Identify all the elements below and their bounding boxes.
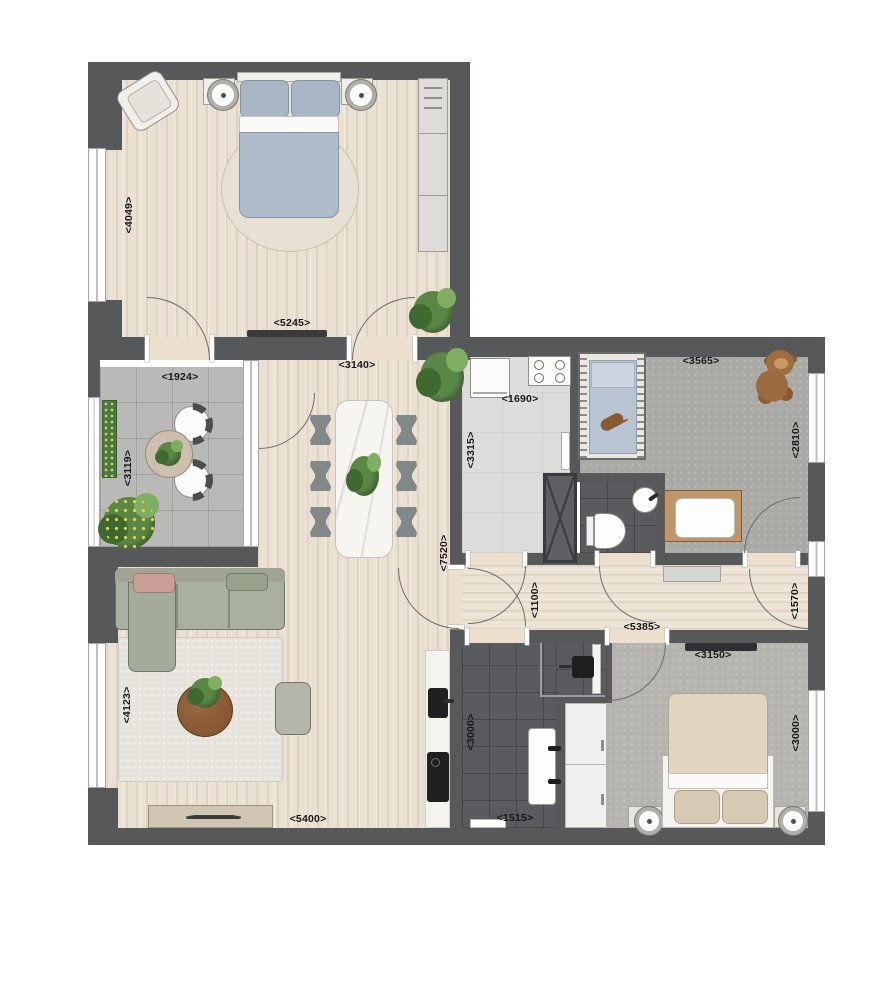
dim-living-room-width: <5400> [278,812,338,826]
dim-vestibule-width: <1100> [528,570,542,630]
wardrobe-divider [419,133,447,134]
wardrobe-icon [565,703,607,828]
wall-bathroom-left [450,630,462,828]
bed-sheet-fold [668,773,768,789]
dim-balcony-width: <1924> [150,370,210,384]
wall-balcony-stub [88,360,100,397]
wardrobe-divider [419,195,447,196]
teddy-bear-icon [752,348,800,406]
installation-shaft-icon [543,473,577,563]
entrance-door-icon [808,541,825,577]
dim-dining-width: <3140> [327,358,387,372]
bedroom2-window-icon [808,690,825,812]
wardrobe-icon [418,78,448,252]
pillow [240,80,289,118]
toilet-cistern [586,516,594,546]
table-lamp-icon [779,807,807,835]
dim-open-area-height: <7520> [437,523,451,583]
dim-utility-height: <3315> [464,420,478,480]
dim-bathroom-width: <1515> [485,811,545,825]
toilet-sink-icon [632,487,658,513]
wall-toilet-top [577,473,665,482]
hob-icon [528,356,571,386]
kitchen-hob-icon [427,752,449,802]
double-bed-icon [662,693,774,828]
floor-plan: <4049> <5245> <1924> <3119> <3140> <1690… [0,0,880,1000]
shower-glass-icon [540,695,605,697]
sofa-icon [115,568,285,632]
dim-balcony-height: <3119> [121,438,135,498]
wardrobe-handle [601,740,604,751]
pillow [674,790,720,824]
changing-pad [675,498,735,538]
door-opening-utility [468,553,525,565]
table-centerpiece-icon [349,456,379,496]
dim-hallway-length: <5385> [612,620,672,634]
pillow [722,790,768,824]
crib-icon [578,352,646,460]
shower-glass-icon [540,643,542,697]
double-bed-icon [237,72,341,220]
bed-duvet [239,132,339,218]
wall-master-right [450,62,470,360]
door-opening-toilet [597,553,653,565]
dim-bedroom2-width: <3150> [683,648,743,662]
wall-left-block [88,300,122,337]
plant-icon [420,352,464,402]
wall-bottom [88,828,825,845]
basin-tap-icon [548,779,561,784]
faucet-icon [444,699,454,703]
bed-duvet [668,693,768,785]
dim-utility-width: <1690> [490,392,550,406]
radiator-icon [561,432,570,470]
dim-master-bedroom-height: <4049> [122,185,136,245]
living-room-window-icon [88,643,106,788]
sofa-pillow-green [226,573,268,591]
dim-kids-room-width: <3565> [671,354,731,368]
dim-hallway-entry-depth: <1570> [788,571,802,631]
table-lamp-icon [635,807,663,835]
dim-living-room-height: <4123> [120,675,134,735]
dim-bedroom2-height: <3000> [789,703,803,763]
plant-icon [190,678,220,708]
sofa-pillow-pink [133,573,175,593]
tv-icon [186,815,241,819]
master-bedroom-window-icon [88,148,106,302]
teddy-muzzle [774,358,788,369]
table-lamp-icon [346,80,376,110]
shower-head-icon [572,656,594,678]
dim-kids-room-height: <2810> [789,410,803,470]
wall-bath-bedroom [556,703,565,828]
kitchen-sink-icon [428,688,448,718]
wardrobe-rail [424,97,442,99]
planter-box-icon [102,400,117,478]
crib-pillow [591,362,635,388]
dim-master-bedroom-width: <5245> [262,316,322,330]
basin-tap-icon [548,746,561,751]
door-opening-kids-room [745,553,798,565]
door-opening-bathroom [467,630,527,643]
table-lamp-icon [208,80,238,110]
kids-room-window-icon [808,373,825,463]
wall-living-corner-top [88,547,118,643]
flower-dots-icon [103,497,155,549]
wardrobe-handle [601,794,604,805]
pillow [291,80,340,118]
changing-table-icon [664,490,742,542]
washbasin-icon [528,728,556,805]
plant-icon [157,442,181,466]
sofa-chaise [128,582,176,672]
tv-cabinet-icon [148,805,273,828]
pouf-icon [275,682,311,735]
plant-icon [413,291,453,333]
bedroom-sideboard [247,330,327,337]
wardrobe-rail [424,107,442,109]
teddy-body [756,370,788,402]
balcony-glass-wall-icon [243,360,259,547]
wardrobe-rail [424,87,442,89]
hallway-cabinet [663,566,721,582]
dim-bathroom-height: <3000> [464,702,478,762]
